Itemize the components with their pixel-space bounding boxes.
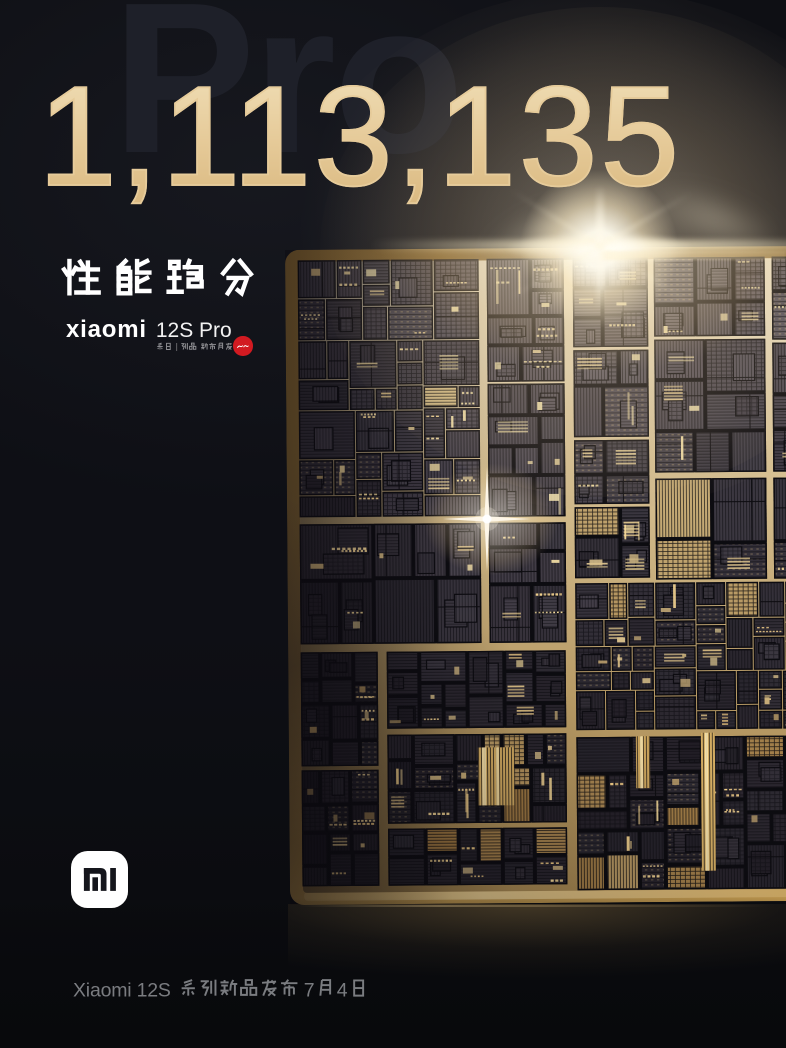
svg-text:7: 7 bbox=[304, 980, 315, 1002]
svg-text:4: 4 bbox=[337, 980, 348, 1002]
svg-text:Xiaomi 12S: Xiaomi 12S bbox=[73, 980, 171, 1002]
